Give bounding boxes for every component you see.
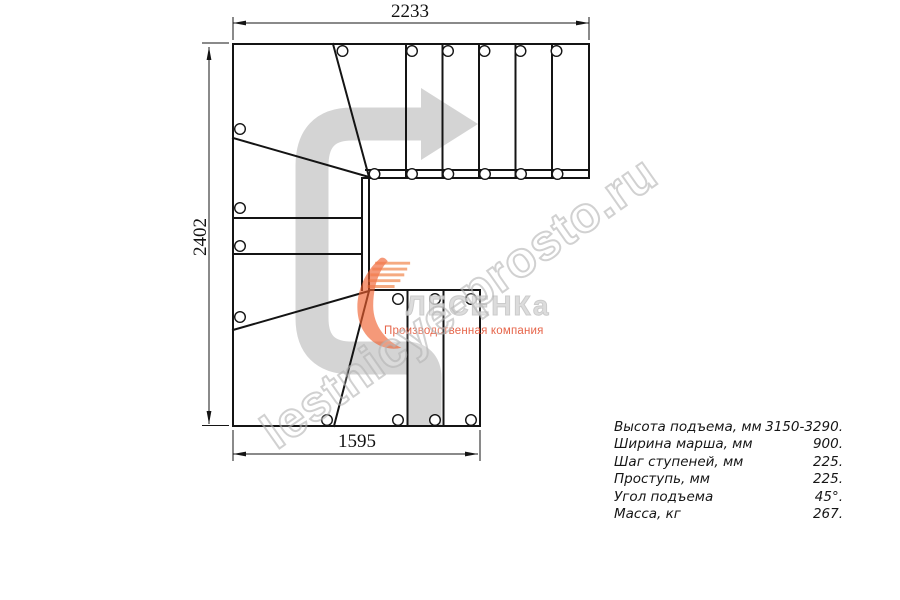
spec-row-mass: Масса, кг 267. (614, 506, 843, 523)
spec-value: 225. (813, 454, 843, 471)
dim-arrow-right (465, 452, 478, 457)
spec-row-angle: Угол подъема 45°. (614, 489, 843, 506)
dim-arrow-down (207, 411, 212, 424)
spec-value: 900. (813, 436, 843, 453)
spec-row-height: Высота подъема, мм 3150-3290. (614, 419, 843, 436)
spec-table: Высота подъема, мм 3150-3290. Ширина мар… (614, 419, 843, 523)
spec-label: Масса, кг (614, 506, 681, 523)
spec-row-tread: Проступь, мм 225. (614, 471, 843, 488)
dim-top-value: 2233 (391, 1, 429, 22)
spec-label: Угол подъема (614, 489, 713, 506)
dim-arrow-right (576, 21, 589, 26)
direction-arrow-head (421, 88, 478, 160)
dimension-left: 2402 (190, 43, 229, 426)
dimension-top: 2233 (233, 1, 589, 40)
spec-row-flight-width: Ширина марша, мм 900. (614, 436, 843, 453)
dim-arrow-left (233, 21, 246, 26)
dim-bottom-value: 1595 (338, 431, 376, 452)
spec-value: 3150-3290. (765, 419, 843, 436)
spec-value: 225. (813, 471, 843, 488)
spec-value: 45°. (815, 489, 843, 506)
dim-arrow-left (233, 452, 246, 457)
dim-arrow-up (207, 47, 212, 60)
spec-label: Проступь, мм (614, 471, 710, 488)
spec-label: Шаг ступеней, мм (614, 454, 743, 471)
stair-drawing-page: 2233 2402 1595 ЛЕСЕНКа Пр (0, 0, 900, 600)
spec-value: 267. (813, 506, 843, 523)
dim-left-value: 2402 (190, 218, 211, 256)
spec-row-step-pitch: Шаг ступеней, мм 225. (614, 454, 843, 471)
spec-label: Высота подъема, мм (614, 419, 762, 436)
spec-label: Ширина марша, мм (614, 436, 753, 453)
